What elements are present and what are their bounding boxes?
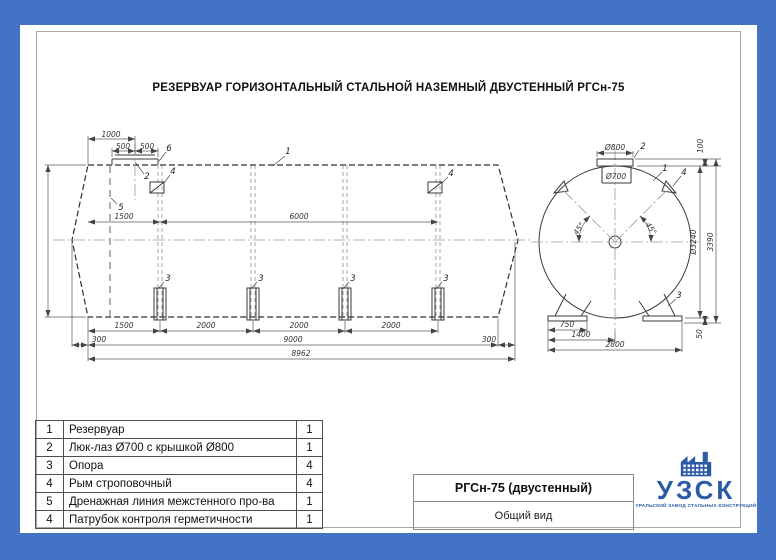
end-callouts: 2 1 4 3 [634, 142, 687, 306]
callout-1-end: 1 [662, 164, 667, 174]
dim-2000-c: 2000 [381, 321, 400, 330]
end-view: 45° 45° Ø800 Ø700 [531, 139, 721, 352]
table-row: 4 Рым строповочный 4 [36, 475, 323, 493]
part-qty: 1 [297, 439, 323, 457]
callout-5: 5 [118, 203, 123, 213]
mid-dimensions: 1500 6000 [88, 212, 438, 222]
height-dimension: 3240 [45, 165, 86, 317]
dim-3240: 3240 [45, 231, 47, 250]
part-num: 2 [36, 439, 64, 457]
support-axes [158, 165, 440, 317]
parts-table: 1 Резервуар 1 2 Люк-лаз Ø700 с крышкой Ø… [35, 420, 323, 529]
callout-3-end: 3 [676, 291, 681, 301]
logo-abbr: УЗСК [657, 478, 735, 502]
callout-3-c: 3 [350, 274, 355, 284]
table-row: 3 Опора 4 [36, 457, 323, 475]
dim-6000: 6000 [289, 212, 308, 221]
part-num: 5 [36, 493, 64, 511]
part-name: Люк-лаз Ø700 с крышкой Ø800 [64, 439, 297, 457]
dim-100: 100 [696, 139, 705, 154]
dim-50: 50 [695, 329, 704, 339]
part-name: Опора [64, 457, 297, 475]
factory-icon [677, 451, 715, 478]
screenshot-root: { "page": { "title": "РЕЗЕРВУАР ГОРИЗОНТ… [0, 0, 776, 560]
dim-d700: Ø700 [605, 172, 626, 181]
callout-4-left: 4 [170, 167, 175, 177]
logo-tagline: УРАЛЬСКИЙ ЗАВОД СТАЛЬНЫХ КОНСТРУКЦИЙ [636, 504, 757, 509]
part-name: Резервуар [64, 421, 297, 439]
tank-outline [72, 165, 518, 317]
part-num: 4 [36, 511, 64, 529]
callout-4-right: 4 [448, 169, 453, 179]
dim-d800: Ø800 [604, 143, 625, 152]
technical-drawing: 1000 500 500 1500 6000 3240 [45, 130, 745, 390]
callout-3-d: 3 [443, 274, 448, 284]
dim-2800: 2800 [605, 340, 624, 349]
dim-500-left: 500 [116, 142, 131, 151]
dim-500-right: 500 [140, 142, 155, 151]
dim-300-left: 300 [92, 335, 107, 344]
callout-4-end: 4 [681, 168, 686, 178]
table-row: 5 Дренажная линия межстенного про-ва 1 [36, 493, 323, 511]
part-qty: 1 [297, 511, 323, 529]
part-qty: 1 [297, 493, 323, 511]
callout-2: 2 [144, 172, 149, 182]
dim-750: 750 [560, 320, 575, 329]
top-dimensions: 1000 500 500 [88, 130, 158, 165]
callout-2-end: 2 [640, 142, 645, 152]
dim-300-right: 300 [482, 335, 497, 344]
dim-8962: 8962 [291, 349, 310, 358]
dim-1500-mid: 1500 [114, 212, 133, 221]
dim-2000-a: 2000 [196, 321, 215, 330]
part-num: 3 [36, 457, 64, 475]
part-qty: 4 [297, 475, 323, 493]
part-name: Рым строповочный [64, 475, 297, 493]
bottom-dimensions: 1500 2000 2000 2000 300 9000 300 8962 [72, 242, 515, 361]
view-name: Общий вид [414, 502, 633, 529]
drawing-title: РЕЗЕРВУАР ГОРИЗОНТАЛЬНЫЙ СТАЛЬНОЙ НАЗЕМН… [20, 82, 757, 94]
dim-2000-b: 2000 [289, 321, 308, 330]
angle-right: 45° [644, 221, 659, 237]
table-row: 1 Резервуар 1 [36, 421, 323, 439]
part-name: Патрубок контроля герметичности [64, 511, 297, 529]
supports-side [154, 288, 444, 320]
model-designation: РГСн-75 (двустенный) [414, 475, 633, 502]
part-num: 1 [36, 421, 64, 439]
dim-3390: 3390 [706, 232, 715, 251]
part-qty: 4 [297, 457, 323, 475]
dim-1000: 1000 [101, 130, 120, 139]
callout-1: 1 [285, 147, 290, 157]
title-block: РГСн-75 (двустенный) Общий вид [413, 474, 634, 530]
dim-9000: 9000 [283, 335, 302, 344]
right-dimensions: 100 Ø3240 3390 50 [635, 139, 721, 339]
side-view: 1000 500 500 1500 6000 3240 [45, 130, 532, 361]
part-num: 4 [36, 475, 64, 493]
side-callouts: 1 2 6 4 5 4 3 3 3 3 [111, 144, 454, 289]
table-row: 4 Патрубок контроля герметичности 1 [36, 511, 323, 529]
drawing-sheet: РЕЗЕРВУАР ГОРИЗОНТАЛЬНЫЙ СТАЛЬНОЙ НАЗЕМН… [20, 25, 757, 533]
company-logo: УЗСК УРАЛЬСКИЙ ЗАВОД СТАЛЬНЫХ КОНСТРУКЦИ… [632, 451, 760, 513]
dim-1500-bottom: 1500 [114, 321, 133, 330]
part-name: Дренажная линия межстенного про-ва [64, 493, 297, 511]
callout-6: 6 [166, 144, 172, 154]
callout-3-b: 3 [258, 274, 263, 284]
dim-d3240: Ø3240 [689, 229, 698, 255]
callout-3-a: 3 [165, 274, 170, 284]
dim-1400: 1400 [571, 330, 590, 339]
table-row: 2 Люк-лаз Ø700 с крышкой Ø800 1 [36, 439, 323, 457]
part-qty: 1 [297, 421, 323, 439]
